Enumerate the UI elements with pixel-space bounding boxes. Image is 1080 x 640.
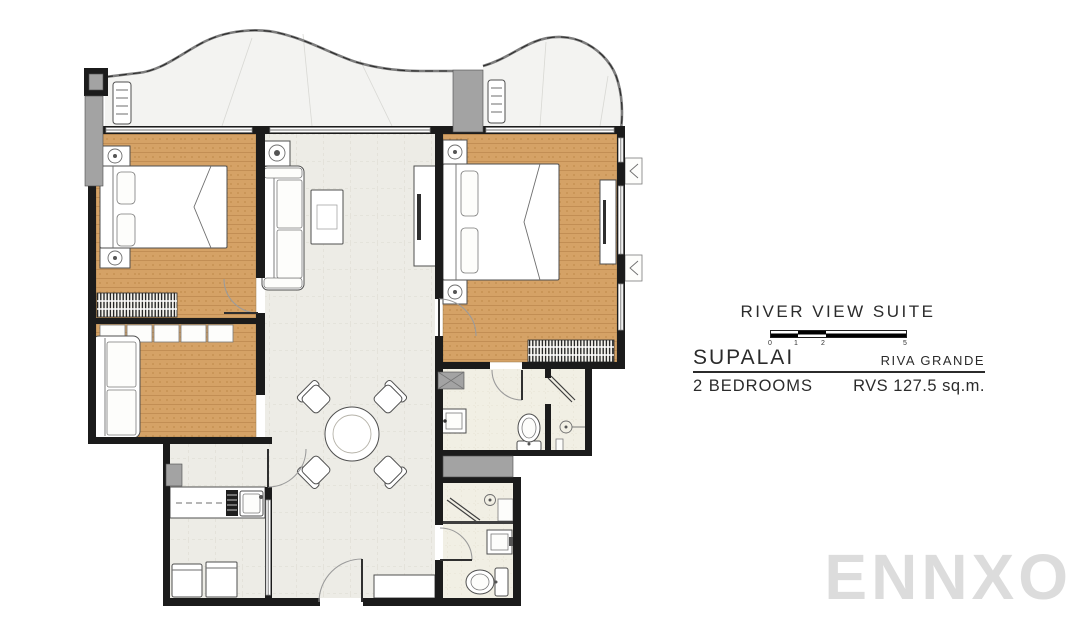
vanity-sink bbox=[442, 409, 466, 433]
developer-name: SUPALAI bbox=[693, 346, 794, 370]
bed bbox=[443, 164, 559, 280]
wardrobe bbox=[528, 340, 614, 362]
entry-console bbox=[374, 575, 435, 598]
shaft bbox=[443, 456, 513, 477]
tv-console bbox=[414, 166, 436, 266]
divider-line bbox=[693, 371, 985, 373]
washing-machine bbox=[172, 564, 202, 597]
watermark: ENNXO bbox=[786, 545, 1072, 609]
toilet bbox=[466, 568, 508, 596]
dish-rack bbox=[226, 490, 238, 516]
ac-ledge bbox=[625, 158, 642, 184]
counter bbox=[170, 487, 265, 518]
tv-console bbox=[600, 180, 616, 264]
scale-bar bbox=[770, 330, 907, 338]
kitchen-column bbox=[166, 464, 182, 486]
toilet bbox=[517, 414, 541, 451]
suite-title: RIVER VIEW SUITE bbox=[700, 302, 976, 322]
water-heater bbox=[498, 499, 513, 521]
bed bbox=[100, 166, 227, 248]
scale-segment bbox=[798, 331, 826, 337]
floor-plan-page: RIVER VIEW SUITE 0 1 2 5 SUPALAI RIVA GR… bbox=[0, 0, 1080, 640]
sofa bbox=[262, 166, 304, 290]
refrigerator bbox=[206, 562, 237, 597]
sink bbox=[487, 530, 513, 554]
scale-segment bbox=[771, 331, 798, 337]
balcony-floor-left bbox=[105, 30, 453, 130]
scale-segment bbox=[826, 331, 906, 337]
sofa bbox=[92, 336, 140, 438]
bath-duct bbox=[438, 372, 464, 389]
ac-ledge bbox=[625, 255, 642, 281]
left-column bbox=[85, 96, 103, 186]
brand-row: SUPALAI RIVA GRANDE bbox=[693, 346, 985, 370]
ac-unit-2 bbox=[488, 80, 505, 123]
ac-unit-1 bbox=[113, 82, 131, 124]
balcony bbox=[105, 30, 622, 130]
project-name: RIVA GRANDE bbox=[881, 353, 985, 370]
unit-row: 2 BEDROOMS RVS 127.5 sq.m. bbox=[693, 377, 985, 396]
coffee-table bbox=[311, 190, 343, 244]
balcony-column bbox=[453, 70, 483, 132]
unit-area: RVS 127.5 sq.m. bbox=[853, 377, 985, 396]
wardrobe bbox=[97, 293, 177, 317]
bedroom-count: 2 BEDROOMS bbox=[693, 377, 813, 396]
